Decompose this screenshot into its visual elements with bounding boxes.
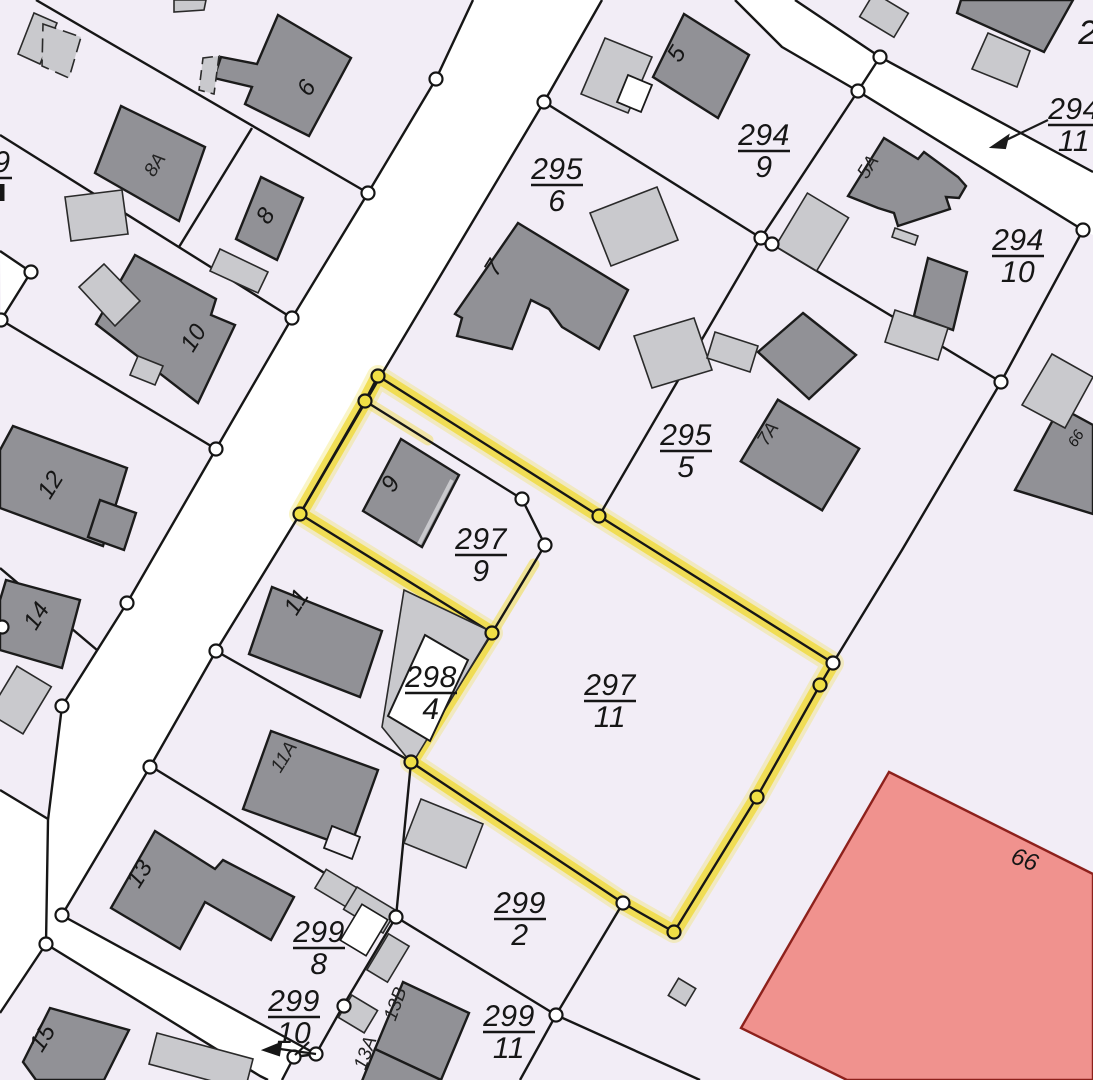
svg-text:6: 6	[548, 185, 565, 218]
svg-text:8: 8	[310, 948, 327, 981]
svg-text:294: 294	[991, 224, 1044, 257]
svg-text:11: 11	[493, 1032, 525, 1065]
svg-text:297: 297	[454, 523, 507, 556]
svg-text:295: 295	[659, 419, 712, 452]
svg-text:298: 298	[404, 661, 457, 694]
svg-text:9: 9	[755, 151, 772, 184]
svg-text:11: 11	[594, 701, 626, 734]
svg-text:10: 10	[1001, 256, 1035, 289]
svg-text:295: 295	[530, 153, 583, 186]
svg-text:294: 294	[737, 119, 790, 152]
svg-text:299: 299	[292, 916, 345, 949]
svg-text:299: 299	[493, 887, 546, 920]
svg-text:9: 9	[472, 555, 489, 588]
svg-text:10: 10	[277, 1017, 311, 1050]
svg-text:5: 5	[677, 451, 694, 484]
svg-text:299: 299	[267, 985, 320, 1018]
svg-text:294: 294	[1047, 93, 1093, 126]
svg-text:2: 2	[1077, 14, 1093, 52]
svg-text:4: 4	[422, 693, 439, 726]
svg-text:9: 9	[0, 146, 11, 179]
svg-text:11: 11	[1058, 125, 1090, 158]
svg-text:2: 2	[510, 919, 528, 952]
svg-text:297: 297	[583, 669, 636, 702]
svg-text:299: 299	[482, 1000, 535, 1033]
